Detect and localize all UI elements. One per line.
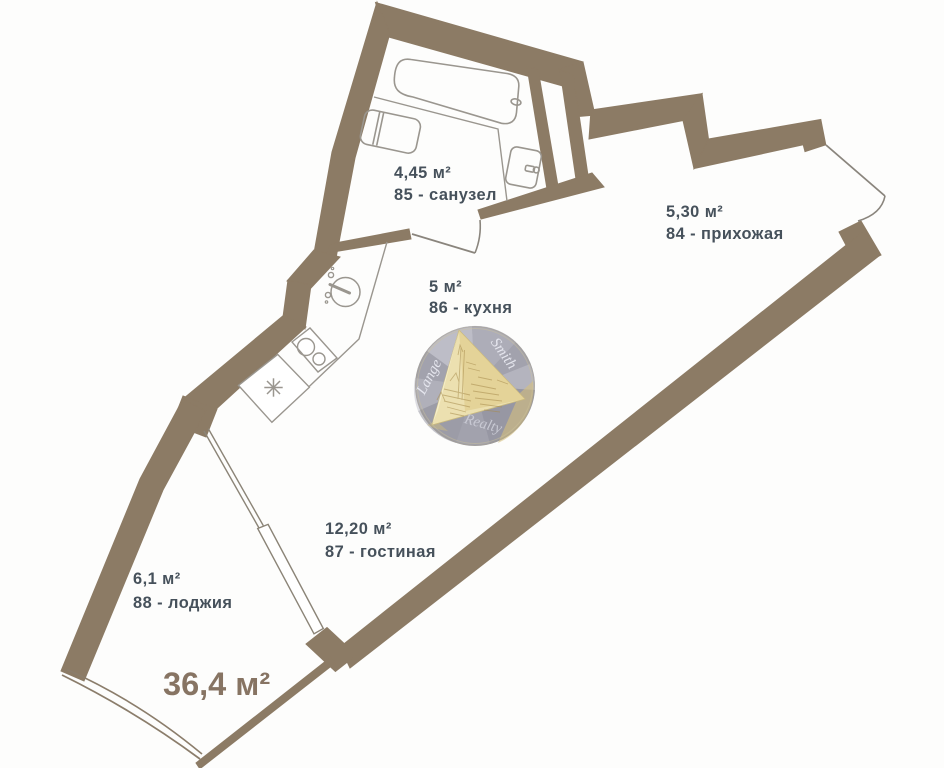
svg-text:86 - кухня: 86 - кухня — [429, 299, 512, 317]
svg-text:36,4 м²: 36,4 м² — [163, 666, 270, 702]
svg-text:6,1 м²: 6,1 м² — [133, 570, 181, 588]
svg-text:88 - лоджия: 88 - лоджия — [133, 594, 232, 612]
svg-text:12,20 м²: 12,20 м² — [325, 520, 392, 538]
svg-text:84 - прихожая: 84 - прихожая — [666, 225, 784, 243]
svg-text:5,30 м²: 5,30 м² — [666, 203, 723, 221]
svg-text:5 м²: 5 м² — [429, 278, 462, 296]
svg-text:4,45 м²: 4,45 м² — [394, 164, 451, 182]
svg-text:85 - санузел: 85 - санузел — [394, 186, 497, 204]
svg-text:87 - гостиная: 87 - гостиная — [325, 543, 436, 561]
